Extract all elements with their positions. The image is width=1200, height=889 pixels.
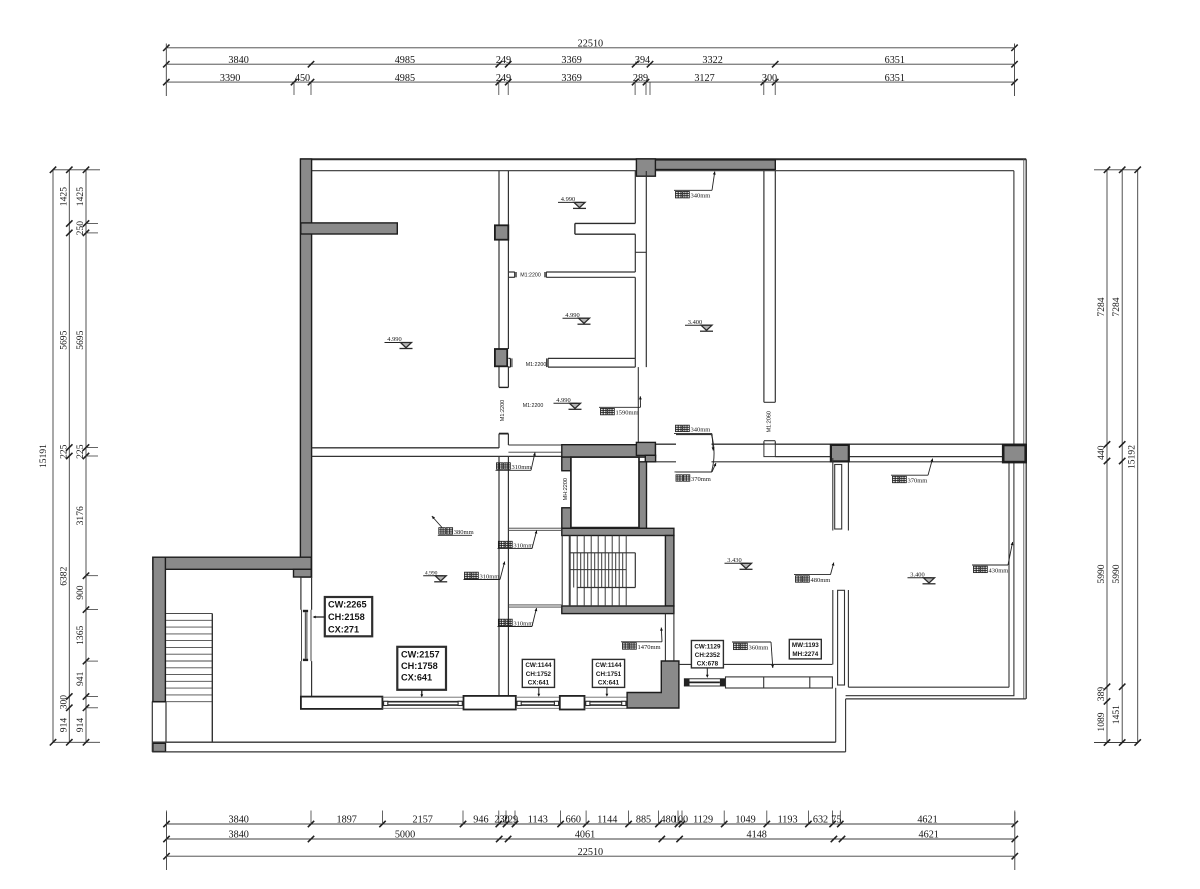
svg-text:249: 249 (496, 55, 511, 66)
svg-text:1193: 1193 (778, 815, 798, 826)
svg-text:3.400: 3.400 (910, 572, 924, 579)
svg-text:4985: 4985 (395, 73, 415, 84)
svg-text:389: 389 (1096, 687, 1107, 702)
svg-text:CH:1752: CH:1752 (526, 671, 552, 678)
svg-text:CX:271: CX:271 (328, 625, 359, 635)
svg-text:1451: 1451 (1111, 705, 1122, 724)
svg-text:CW:1144: CW:1144 (525, 662, 552, 669)
svg-text:7284: 7284 (1111, 297, 1122, 316)
svg-text:6351: 6351 (885, 55, 905, 66)
svg-text:5990: 5990 (1111, 564, 1122, 583)
svg-text:4061: 4061 (575, 830, 595, 841)
svg-text:1144: 1144 (597, 815, 617, 826)
svg-text:22510: 22510 (578, 847, 603, 858)
svg-text:900: 900 (75, 585, 86, 600)
svg-text:480mm: 480mm (811, 577, 831, 584)
svg-text:CW:2157: CW:2157 (401, 650, 440, 660)
svg-text:300: 300 (58, 695, 69, 710)
svg-text:1425: 1425 (75, 187, 86, 206)
svg-text:229: 229 (503, 815, 518, 826)
svg-text:MH:2200: MH:2200 (563, 478, 569, 500)
svg-text:1365: 1365 (75, 626, 86, 645)
svg-text:914: 914 (58, 718, 69, 733)
svg-text:4621: 4621 (919, 830, 939, 841)
svg-text:1129: 1129 (693, 815, 713, 826)
svg-text:CX:641: CX:641 (528, 680, 550, 687)
svg-text:MW:1193: MW:1193 (792, 642, 819, 649)
svg-text:M1:2200: M1:2200 (500, 400, 506, 421)
svg-text:22510: 22510 (578, 39, 603, 50)
svg-text:430mm: 430mm (989, 567, 1009, 574)
svg-text:394: 394 (635, 55, 650, 66)
svg-text:CW:2265: CW:2265 (328, 600, 367, 610)
svg-text:15192: 15192 (1127, 445, 1138, 469)
svg-text:914: 914 (75, 718, 86, 733)
svg-text:249: 249 (496, 73, 511, 84)
svg-text:7284: 7284 (1096, 297, 1107, 316)
svg-text:250: 250 (75, 221, 86, 236)
svg-text:1590mm: 1590mm (616, 410, 639, 417)
svg-text:CH:1758: CH:1758 (401, 661, 438, 671)
svg-text:M1:2200: M1:2200 (520, 272, 541, 278)
svg-text:450: 450 (295, 73, 310, 84)
svg-text:5990: 5990 (1096, 564, 1107, 583)
svg-text:100: 100 (673, 815, 688, 826)
svg-text:5695: 5695 (58, 330, 69, 349)
svg-text:5000: 5000 (395, 830, 415, 841)
svg-text:CH:2352: CH:2352 (695, 652, 721, 659)
svg-text:3322: 3322 (702, 55, 722, 66)
svg-text:370mm: 370mm (908, 478, 928, 485)
svg-text:4.990: 4.990 (556, 397, 570, 404)
svg-text:6351: 6351 (885, 73, 905, 84)
svg-text:CW:1144: CW:1144 (595, 662, 622, 669)
svg-text:4621: 4621 (917, 815, 937, 826)
svg-text:660: 660 (566, 815, 581, 826)
svg-text:5695: 5695 (75, 330, 86, 349)
svg-text:632: 632 (813, 815, 828, 826)
svg-text:MH:2274: MH:2274 (792, 651, 818, 658)
svg-text:4.990: 4.990 (561, 196, 575, 203)
svg-text:6382: 6382 (58, 566, 69, 585)
svg-text:CH:1751: CH:1751 (596, 671, 622, 678)
svg-text:440: 440 (1096, 445, 1107, 460)
svg-text:1897: 1897 (337, 815, 357, 826)
svg-text:M1:2200: M1:2200 (526, 362, 547, 368)
svg-text:CX:641: CX:641 (401, 673, 432, 683)
svg-text:3369: 3369 (561, 55, 581, 66)
svg-text:360mm: 360mm (749, 644, 769, 651)
svg-text:4985: 4985 (395, 55, 415, 66)
svg-text:3176: 3176 (75, 506, 86, 525)
svg-text:340mm: 340mm (691, 193, 711, 200)
svg-text:4.990: 4.990 (565, 312, 579, 319)
svg-text:4.990: 4.990 (425, 571, 438, 577)
svg-text:CW:1129: CW:1129 (694, 643, 721, 650)
svg-text:885: 885 (636, 815, 651, 826)
svg-text:4.990: 4.990 (387, 336, 401, 343)
svg-text:2157: 2157 (413, 815, 433, 826)
svg-text:370mm: 370mm (691, 476, 711, 483)
svg-text:75: 75 (831, 815, 841, 826)
svg-text:941: 941 (75, 671, 86, 686)
svg-text:1089: 1089 (1096, 712, 1107, 731)
svg-text:1425: 1425 (58, 187, 69, 206)
svg-text:M1:2200: M1:2200 (523, 403, 544, 409)
svg-text:3.430: 3.430 (727, 557, 741, 564)
svg-text:CX:641: CX:641 (598, 680, 620, 687)
svg-text:1470mm: 1470mm (638, 644, 661, 651)
svg-text:1049: 1049 (735, 815, 755, 826)
svg-text:4148: 4148 (747, 830, 767, 841)
svg-text:3840: 3840 (228, 55, 248, 66)
svg-text:CH:2158: CH:2158 (328, 612, 365, 622)
svg-text:1143: 1143 (528, 815, 548, 826)
svg-text:340mm: 340mm (691, 426, 711, 433)
svg-text:225: 225 (58, 444, 69, 459)
svg-text:3.400: 3.400 (688, 319, 702, 326)
svg-text:15191: 15191 (38, 444, 49, 468)
svg-text:3390: 3390 (220, 73, 240, 84)
svg-text:3840: 3840 (229, 830, 249, 841)
svg-text:3840: 3840 (229, 815, 249, 826)
svg-text:3369: 3369 (561, 73, 581, 84)
svg-text:CX:678: CX:678 (697, 660, 719, 667)
svg-text:946: 946 (473, 815, 488, 826)
svg-text:M1:2060: M1:2060 (766, 411, 772, 432)
svg-text:225: 225 (75, 444, 86, 459)
svg-text:3127: 3127 (694, 73, 714, 84)
